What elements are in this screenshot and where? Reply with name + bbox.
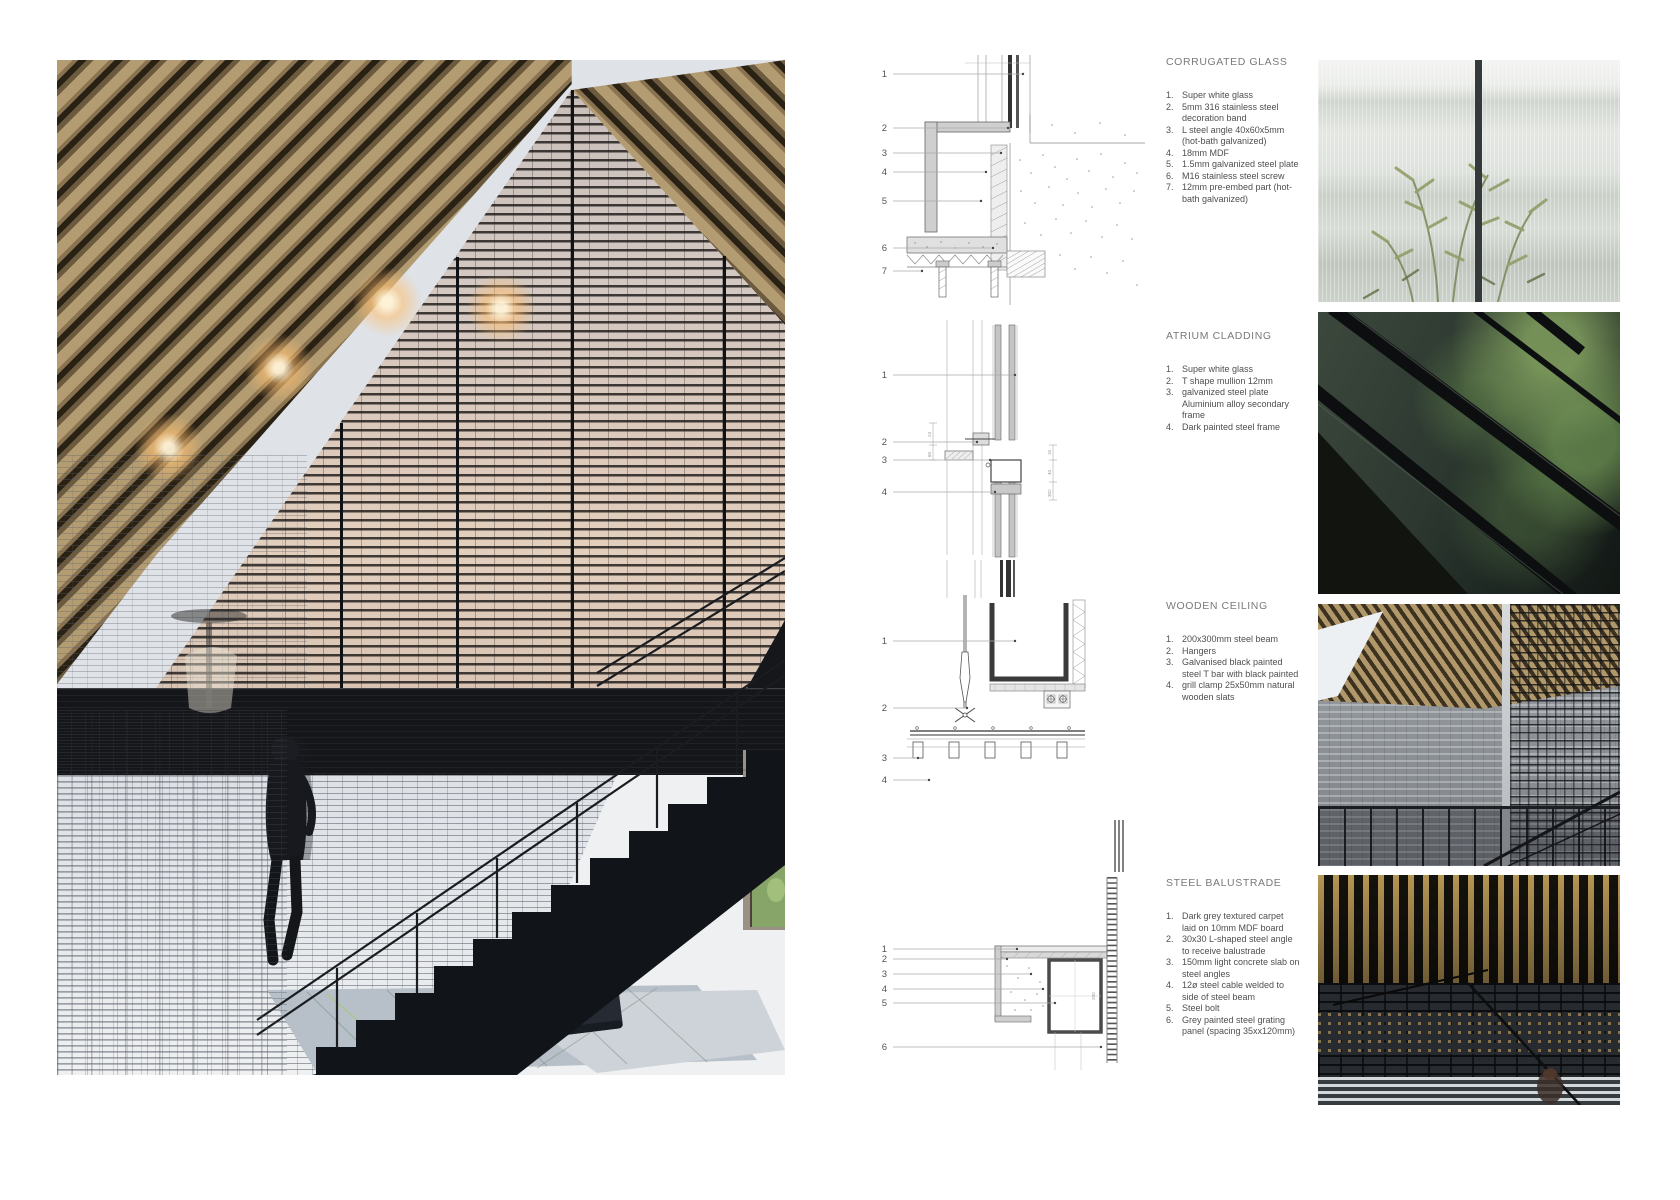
svg-text:3: 3 [882, 148, 887, 159]
legend-item: 4.12ø steel cable welded to side of stee… [1166, 980, 1304, 1003]
svg-text:2: 2 [882, 703, 887, 714]
hatched-plate [945, 451, 973, 460]
concrete-stipple [1006, 965, 1044, 1011]
svg-text:4: 4 [882, 775, 887, 786]
svg-text:6: 6 [882, 243, 887, 254]
legend-item: 1.Dark grey textured carpet laid on 10mm… [1166, 911, 1304, 934]
detail-drawing-atrium-cladding: 15 40 302 24 60 1 2 3 4 [815, 305, 1160, 560]
legend-steel-balustrade: STEEL BALUSTRADE 1.Dark grey textured ca… [1166, 877, 1304, 1038]
photo-dark-window-foliage [1318, 312, 1620, 594]
svg-text:5: 5 [882, 196, 887, 207]
balustrade-post [1115, 820, 1123, 872]
legend-item: 2.30x30 L-shaped steel angle to receive … [1166, 934, 1304, 957]
hanger-rod [955, 595, 975, 722]
svg-text:6: 6 [882, 1042, 887, 1053]
legend-item: 5.1.5mm galvanized steel plate [1166, 159, 1304, 171]
svg-text:2: 2 [882, 954, 887, 965]
svg-text:5: 5 [882, 998, 887, 1009]
svg-text:1: 1 [882, 370, 887, 381]
svg-text:40: 40 [1047, 469, 1052, 475]
legend-heading: ATRIUM CLADDING [1166, 330, 1304, 342]
svg-text:3: 3 [882, 753, 887, 764]
legend-heading: STEEL BALUSTRADE [1166, 877, 1304, 889]
handrail-lines [1318, 604, 1620, 866]
legend-item: 1.Super white glass [1166, 90, 1304, 102]
armchair [185, 647, 237, 713]
wood-slats [907, 742, 1085, 758]
legend-item: 2.5mm 316 stainless steel decoration ban… [1166, 102, 1304, 125]
legend-item: 4.18mm MDF [1166, 148, 1304, 160]
photo-corrugated-glass-bamboo [1318, 60, 1620, 302]
window-frame-overlay [1318, 312, 1620, 594]
crosshatch-block [1007, 251, 1045, 277]
detail-drawing-steel-balustrade: 200 1 2 3 4 5 6 [815, 820, 1160, 1075]
glass-mullion-bar [1475, 60, 1482, 302]
legend-heading: WOODEN CEILING [1166, 600, 1304, 612]
legend-atrium-cladding: ATRIUM CLADDING 1.Super white glass 2.T … [1166, 330, 1304, 433]
legend-item: 3.galvanized steel plate Aluminium alloy… [1166, 387, 1304, 422]
detail-drawing-corrugated-glass: 1 2 3 4 5 6 7 [815, 55, 1160, 305]
grating-panel [1107, 877, 1117, 1063]
svg-text:2: 2 [882, 123, 887, 134]
legend-heading: CORRUGATED GLASS [1166, 56, 1304, 68]
svg-text:7: 7 [882, 266, 887, 277]
legend-item: 7.12mm pre-embed part (hot-bath galvaniz… [1166, 182, 1304, 205]
legend-item: 1.200x300mm steel beam [1166, 634, 1304, 646]
legend-item: 6.Grey painted steel grating panel (spac… [1166, 1015, 1304, 1038]
svg-text:2: 2 [882, 437, 887, 448]
bolt-plate [1044, 691, 1070, 708]
t-bar-rail [907, 727, 1085, 739]
svg-text:15: 15 [1047, 449, 1052, 455]
legend-item: 3.Galvanised black painted steel T bar w… [1166, 657, 1304, 680]
legend-wooden-ceiling: WOODEN CEILING 1.200x300mm steel beam 2.… [1166, 600, 1304, 703]
legend-item: 6.M16 stainless steel screw [1166, 171, 1304, 183]
svg-text:4: 4 [882, 984, 887, 995]
legend-corrugated-glass: CORRUGATED GLASS 1.Super white glass 2.5… [1166, 56, 1304, 205]
main-photo-stair-atrium [57, 60, 785, 1075]
photo-wood-slats-steel-grating [1318, 875, 1620, 1105]
svg-text:60: 60 [927, 451, 932, 457]
svg-text:3: 3 [882, 455, 887, 466]
svg-text:1: 1 [882, 69, 887, 80]
legend-item: 1.Super white glass [1166, 364, 1304, 376]
cable-and-person-overlay [1318, 875, 1620, 1105]
svg-text:4: 4 [882, 167, 887, 178]
svg-text:24: 24 [927, 431, 932, 437]
legend-item: 4.Dark painted steel frame [1166, 422, 1304, 434]
presentation-board: 1 2 3 4 5 6 7 [0, 0, 1680, 1200]
svg-text:200: 200 [1091, 992, 1096, 1000]
detail-drawing-wooden-ceiling: 1 2 3 4 [815, 560, 1160, 810]
legend-item: 2.Hangers [1166, 646, 1304, 658]
svg-text:3: 3 [882, 969, 887, 980]
photo-wood-ceiling-brick-wall [1318, 604, 1620, 866]
legend-item: 2.T shape mullion 12mm [1166, 376, 1304, 388]
balustrade-mesh-foreground [57, 710, 287, 1075]
mullion-box [991, 460, 1021, 482]
svg-text:1: 1 [882, 636, 887, 647]
svg-text:302: 302 [1047, 489, 1052, 497]
anchor-bolt [936, 261, 1001, 297]
bamboo-silhouette [1318, 60, 1620, 302]
legend-item: 4.grill clamp 25x50mm natural wooden sla… [1166, 680, 1304, 703]
legend-item: 3.150mm light concrete slab on steel ang… [1166, 957, 1304, 980]
legend-item: 3.L steel angle 40x60x5mm (hot-bath galv… [1166, 125, 1304, 148]
svg-text:4: 4 [882, 487, 887, 498]
legend-item: 5.Steel bolt [1166, 1003, 1304, 1015]
